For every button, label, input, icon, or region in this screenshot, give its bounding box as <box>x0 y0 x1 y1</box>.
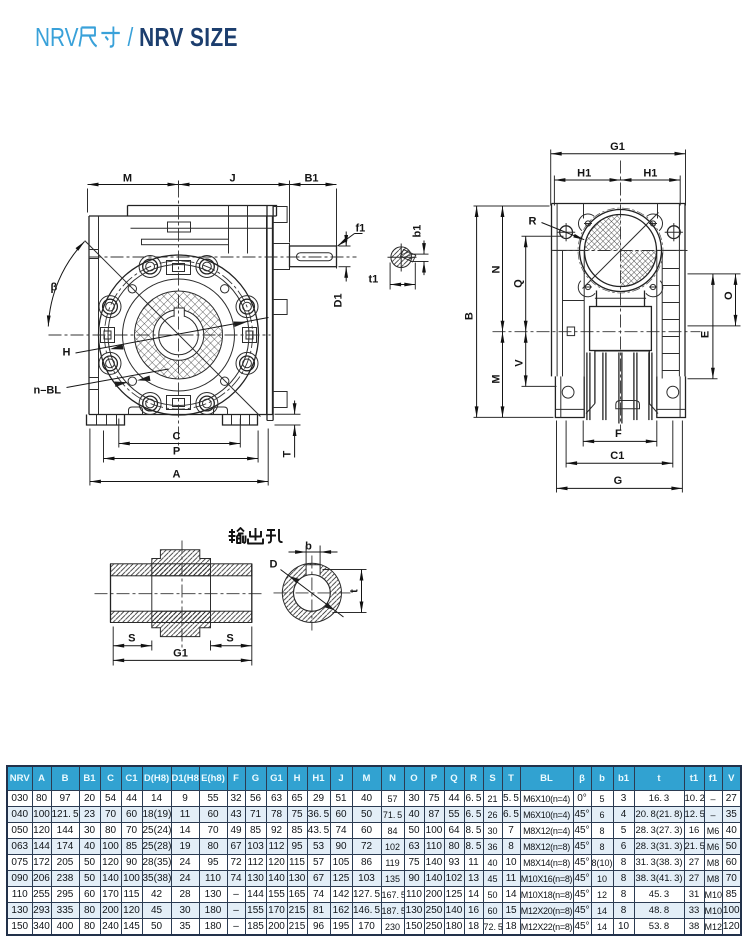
svg-text:E: E <box>700 331 712 338</box>
svg-text:B1: B1 <box>304 173 318 185</box>
svg-text:f1: f1 <box>356 223 366 235</box>
svg-text:V: V <box>513 359 525 367</box>
svg-text:B: B <box>463 312 475 320</box>
svg-text:T: T <box>282 451 294 458</box>
svg-text:A: A <box>173 469 181 481</box>
svg-text:J: J <box>229 173 235 185</box>
svg-text:t: t <box>349 589 361 593</box>
svg-text:H1: H1 <box>643 168 657 180</box>
svg-text:S: S <box>128 633 135 645</box>
svg-text:Q: Q <box>513 279 525 288</box>
svg-text:S: S <box>226 633 233 645</box>
svg-text:G1: G1 <box>610 141 625 153</box>
svg-text:H: H <box>63 347 71 359</box>
svg-text:R: R <box>529 216 537 228</box>
svg-text:b1: b1 <box>412 225 424 238</box>
svg-text:M: M <box>123 173 132 185</box>
svg-text:t1: t1 <box>369 274 379 286</box>
svg-text:D1: D1 <box>333 293 345 307</box>
svg-text:M: M <box>490 374 502 383</box>
svg-text:C1: C1 <box>610 450 624 462</box>
svg-text:N: N <box>490 265 502 273</box>
svg-text:C: C <box>173 431 181 443</box>
svg-text:G: G <box>614 475 623 487</box>
svg-text:P: P <box>173 446 180 458</box>
svg-text:O: O <box>723 291 735 300</box>
svg-text:n–BL: n–BL <box>34 385 62 397</box>
svg-text:F: F <box>615 428 622 440</box>
svg-text:H1: H1 <box>577 168 591 180</box>
svg-text:D: D <box>270 559 278 571</box>
svg-text:G1: G1 <box>173 648 188 660</box>
